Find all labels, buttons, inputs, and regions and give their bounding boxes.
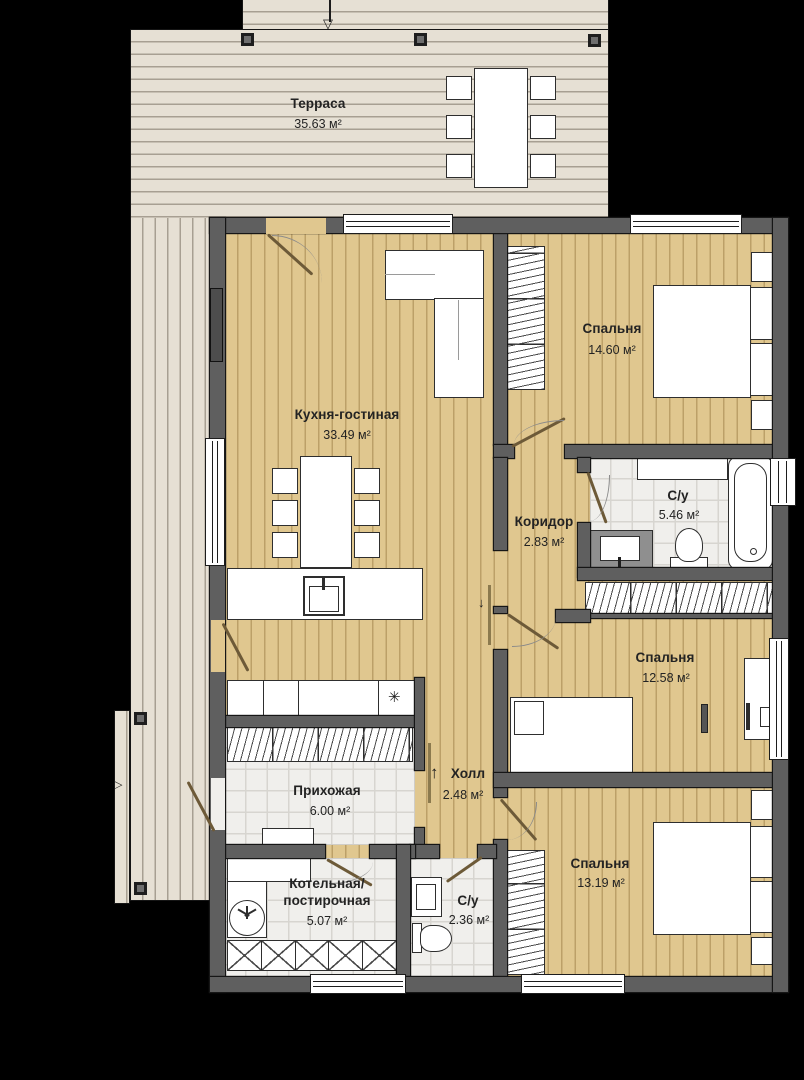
exterior-wall-right [773, 218, 788, 992]
room-label-boiler-line1: Котельная/ [289, 876, 364, 891]
room-area-bathroom-main: 5.46 м² [659, 508, 700, 522]
storage-cell [363, 941, 396, 970]
room-label-bathroom-small: С/у [457, 893, 478, 908]
bedroom-middle-window [769, 638, 789, 760]
room-area-boiler: 5.07 м² [307, 914, 348, 928]
bedroom-top-window [630, 214, 742, 234]
room-label-entry: Прихожая [293, 783, 360, 798]
kitchen-counter [227, 680, 415, 717]
small-bath-sink-basin [416, 884, 436, 910]
wall-boiler-bath [397, 845, 410, 977]
room-label-corridor: Коридор [515, 514, 574, 529]
opening-arrow-icon: ↓ [478, 596, 485, 609]
counter-divider [263, 681, 264, 716]
bed-bottom [653, 822, 751, 935]
exterior-wall-bottom [210, 977, 788, 992]
bathroom-window [770, 458, 796, 506]
wall-bedroom-top-bottom [494, 445, 514, 458]
side-entry-arrow-icon: ▷ [114, 780, 122, 791]
dining-chair [354, 500, 380, 526]
bed-top [653, 285, 751, 398]
room-area-bedroom-middle: 12.58 м² [642, 671, 690, 685]
entrance-door-opening [211, 778, 225, 830]
hob-icon: ✳ [388, 690, 401, 705]
floor-plan: ▽ ▷ ✳ [0, 0, 804, 1080]
sofa-seam [458, 300, 459, 360]
wall-bath-left [578, 458, 590, 472]
desk-monitor [746, 703, 750, 730]
counter-divider [298, 681, 299, 716]
deck-post [588, 34, 601, 47]
dining-chair [354, 532, 380, 558]
bed-middle-pillow [514, 701, 544, 735]
sofa-seam [385, 274, 435, 275]
closet-bedroom-bottom [507, 850, 545, 975]
terrace-door-opening [266, 218, 326, 234]
nightstand [751, 790, 773, 820]
room-label-hall: Холл [451, 766, 485, 781]
kitchen-window [343, 214, 453, 234]
storage-cell [329, 941, 363, 970]
terrace-entry-arrow-icon: ▽ [323, 17, 333, 30]
room-area-corridor: 2.83 м² [524, 535, 565, 549]
wall-kitchen-bedroom [494, 233, 507, 445]
storage-cell [296, 941, 330, 970]
wall-bedrooms-divider [494, 773, 773, 787]
wall-hall-left [494, 607, 507, 613]
room-label-bathroom-main: С/у [667, 488, 688, 503]
wall-corridor-left [494, 458, 507, 550]
room-area-bedroom-top: 14.60 м² [588, 343, 636, 357]
terrace-chair [530, 154, 556, 178]
storage-cell [262, 941, 296, 970]
terrace-chair [446, 76, 472, 100]
nightstand [751, 937, 773, 965]
boiler-storage [227, 940, 397, 971]
room-label-bedroom-bottom: Спальня [570, 856, 629, 871]
deck-post [241, 33, 254, 46]
bath-sink-faucet [618, 557, 621, 567]
room-label-boiler-line2: постирочная [283, 893, 370, 908]
terrace-dining-table [474, 68, 528, 188]
room-area-bedroom-bottom: 13.19 м² [577, 876, 625, 890]
dining-chair [272, 532, 298, 558]
island-faucet [322, 578, 325, 590]
hall-arrow-icon: ↑ [430, 764, 439, 781]
wall-entry-hall-stub [415, 828, 424, 845]
boiler-window [310, 974, 406, 994]
bathtub-drain [750, 548, 757, 555]
bath-vanity [637, 458, 728, 480]
wall-closet-line [585, 614, 773, 618]
deck-door-opening [211, 620, 225, 672]
entry-closet [227, 727, 413, 762]
bed-top-pillow [750, 287, 773, 340]
room-label-bedroom-top: Спальня [582, 321, 641, 336]
terrace-chair [530, 115, 556, 139]
room-label-kitchen-living: Кухня-гостиная [295, 407, 400, 422]
dining-table [300, 456, 352, 568]
terrace-chair [530, 76, 556, 100]
bed-bottom-pillow [750, 881, 773, 933]
tv-unit [210, 288, 223, 362]
wall-bath-bottom [578, 568, 773, 580]
bed-bottom-pillow [750, 826, 773, 878]
dining-chair [272, 468, 298, 494]
bed-top-pillow [750, 343, 773, 396]
dining-chair [354, 468, 380, 494]
wall-bedroom-top-bottom [565, 445, 773, 458]
wall-entry-top [225, 716, 415, 727]
room-area-terrace: 35.63 м² [294, 117, 342, 131]
wall-entry-hall [415, 678, 424, 770]
closet-bedroom-top [505, 246, 545, 390]
deck-post [134, 882, 147, 895]
terrace-chair [446, 154, 472, 178]
room-label-terrace: Терраса [291, 96, 346, 111]
side-deck-rail [114, 710, 130, 904]
wall-corridor-bedroom-stub [556, 610, 590, 622]
room-area-kitchen-living: 33.49 м² [323, 428, 371, 442]
room-area-bathroom-small: 2.36 м² [449, 913, 490, 927]
nightstand [751, 400, 773, 430]
wall-hall-left [494, 840, 507, 977]
dining-chair [272, 500, 298, 526]
small-bath-toilet-bowl [420, 925, 452, 952]
bathtub-inner [734, 463, 767, 562]
nightstand [751, 252, 773, 282]
living-side-window [205, 438, 225, 566]
counter-divider [378, 681, 379, 716]
toilet-bowl [675, 528, 703, 562]
terrace-upper-strip [242, 0, 609, 32]
storage-cell [228, 941, 262, 970]
deck-post [134, 712, 147, 725]
room-area-hall: 2.48 м² [443, 788, 484, 802]
terrace-chair [446, 115, 472, 139]
side-deck [130, 218, 212, 901]
room-label-bedroom-middle: Спальня [635, 650, 694, 665]
bedroom-bottom-window [521, 974, 625, 994]
pocket-door-panel [488, 585, 491, 645]
deck-post [414, 33, 427, 46]
closet-bedroom-middle [585, 582, 773, 615]
wall-boiler-top [225, 845, 325, 858]
room-area-entry: 6.00 м² [310, 804, 351, 818]
desk-chair [701, 704, 708, 733]
